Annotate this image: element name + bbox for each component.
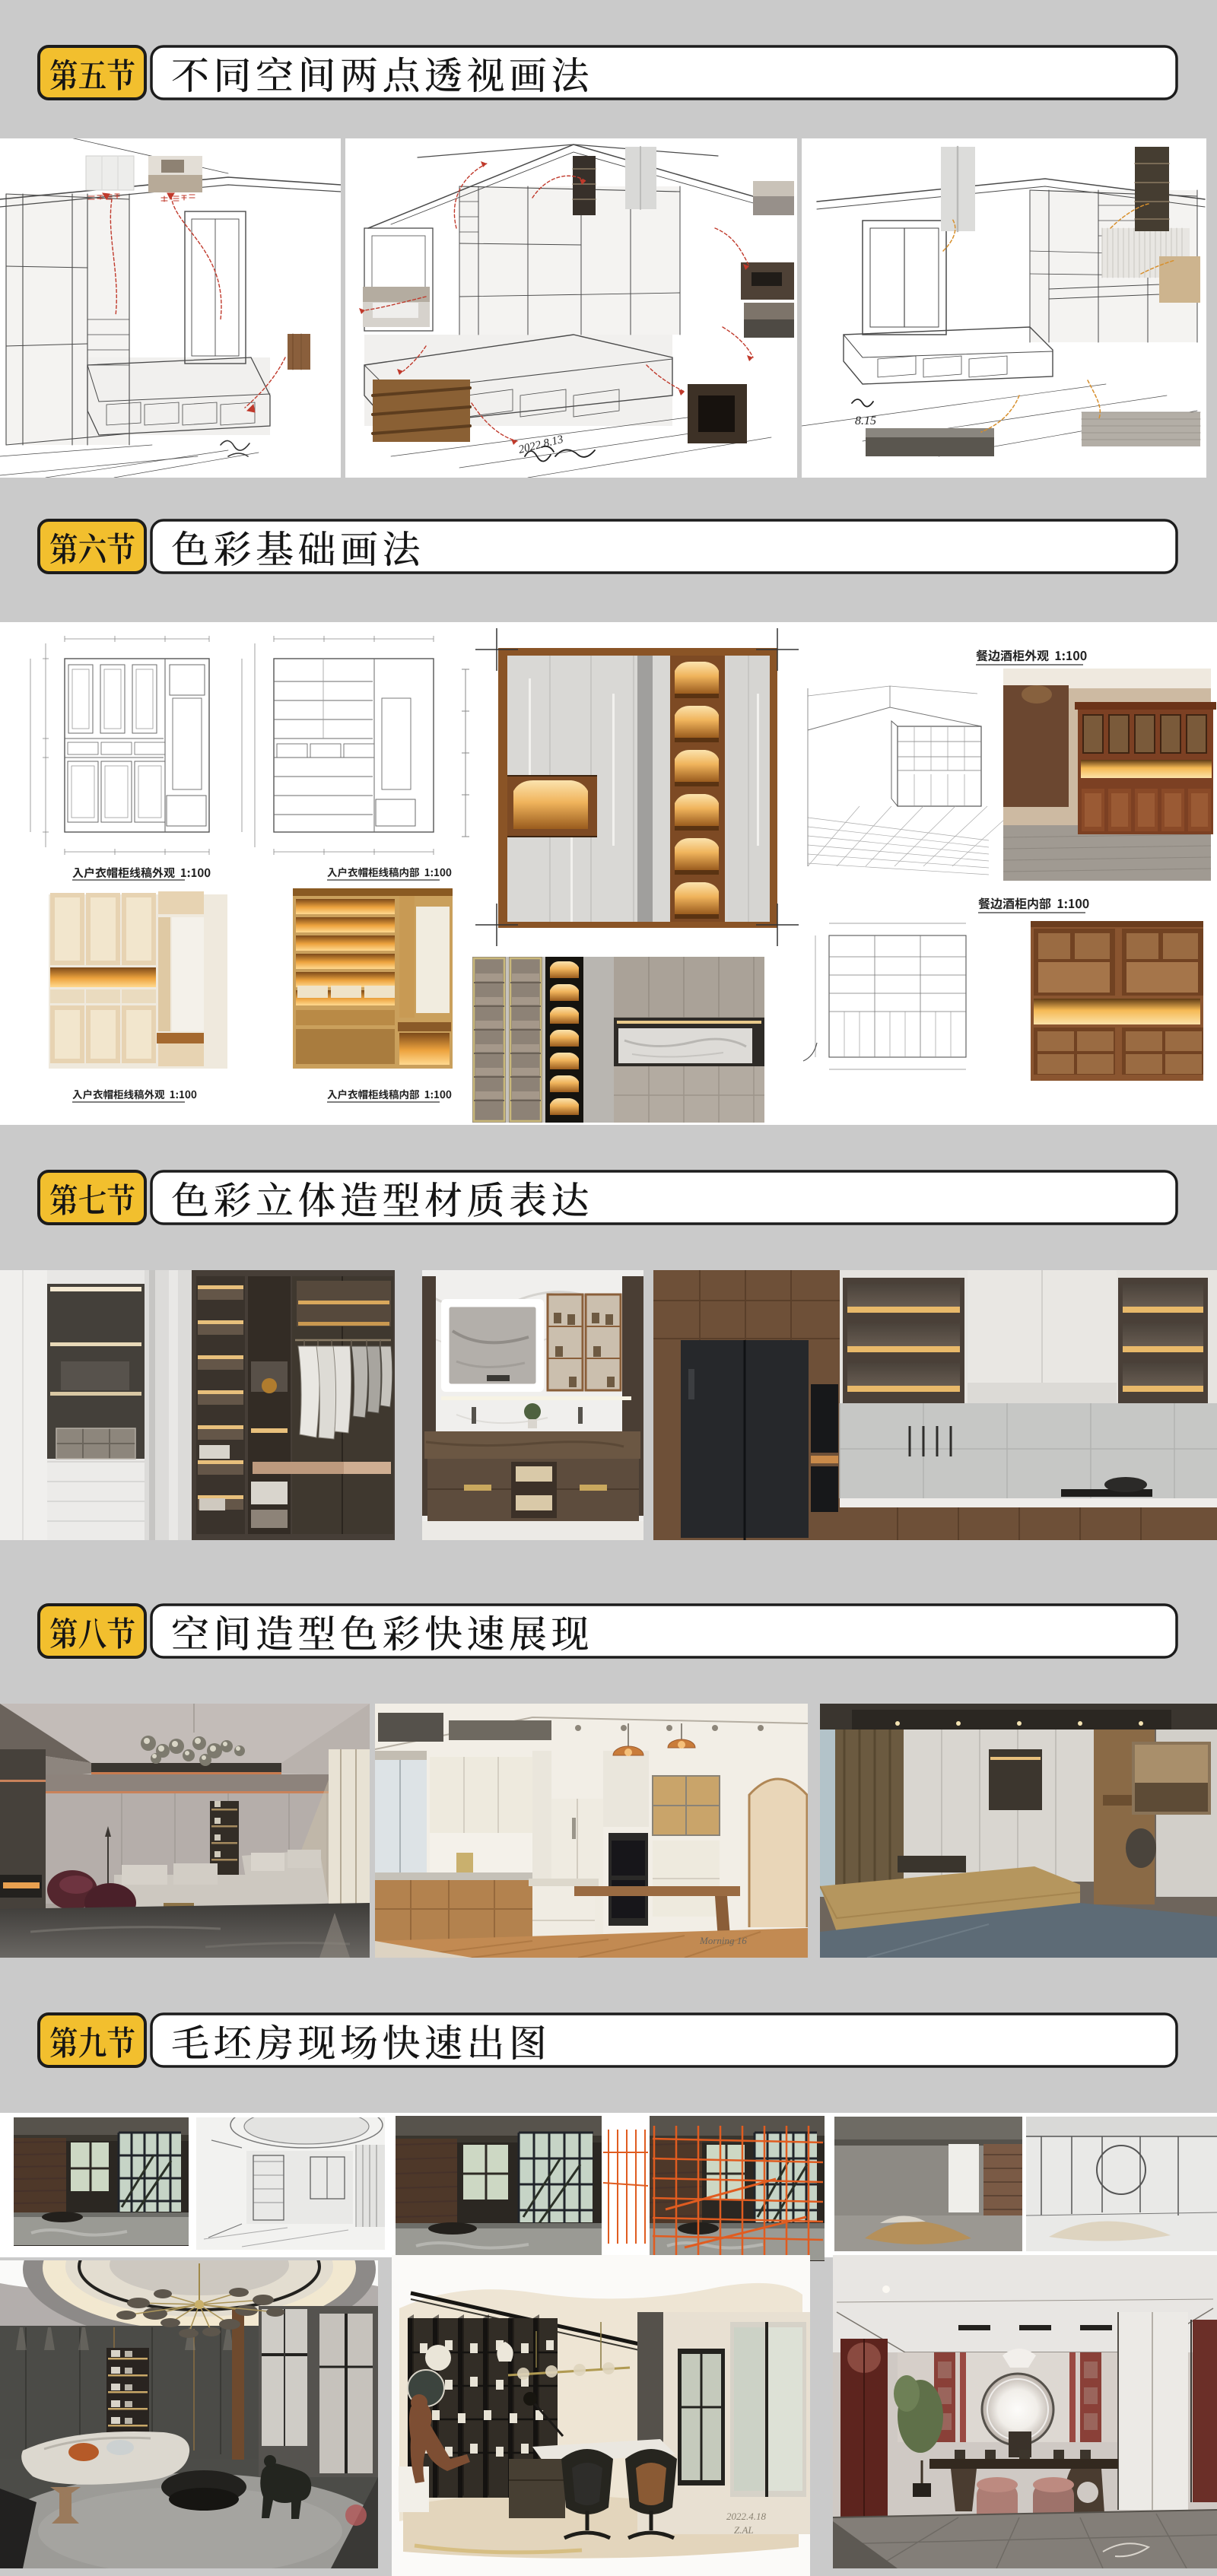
svg-text:Morning 16: Morning 16 xyxy=(699,1935,747,1946)
svg-text:Z.AL: Z.AL xyxy=(734,2524,754,2536)
svg-text:2022.4.18: 2022.4.18 xyxy=(726,2511,767,2522)
svg-text:8.15: 8.15 xyxy=(855,415,876,427)
